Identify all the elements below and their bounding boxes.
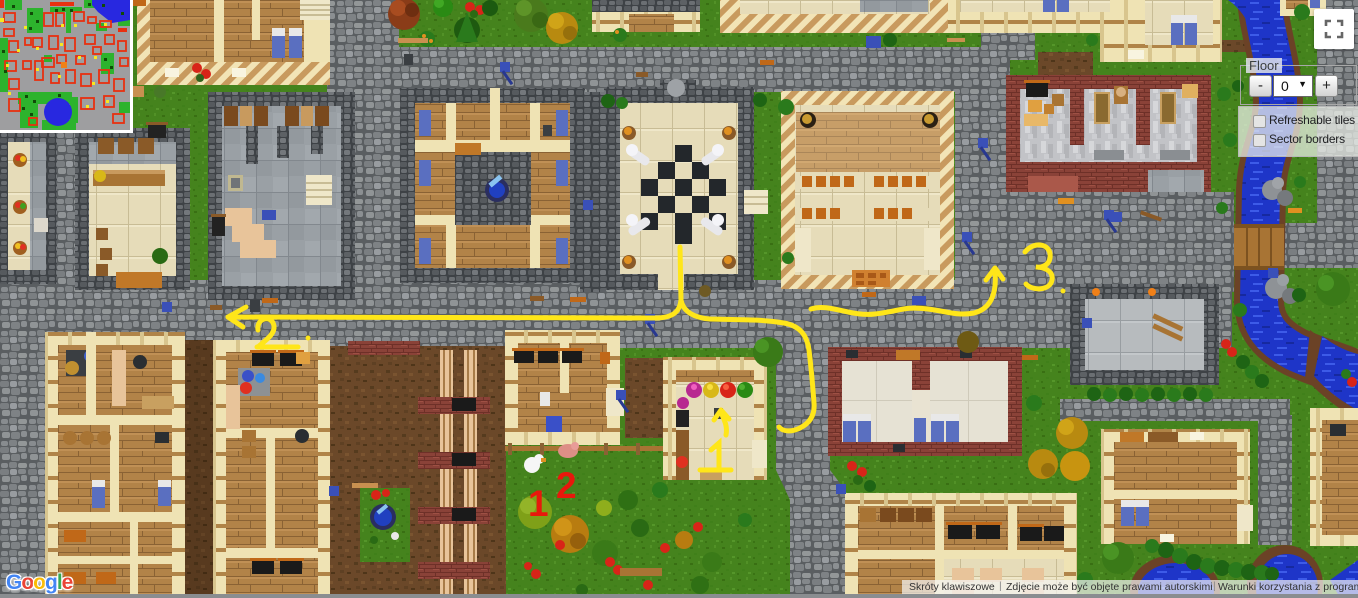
svg-text:2: 2 — [556, 465, 577, 506]
svg-text:1: 1 — [528, 483, 549, 524]
